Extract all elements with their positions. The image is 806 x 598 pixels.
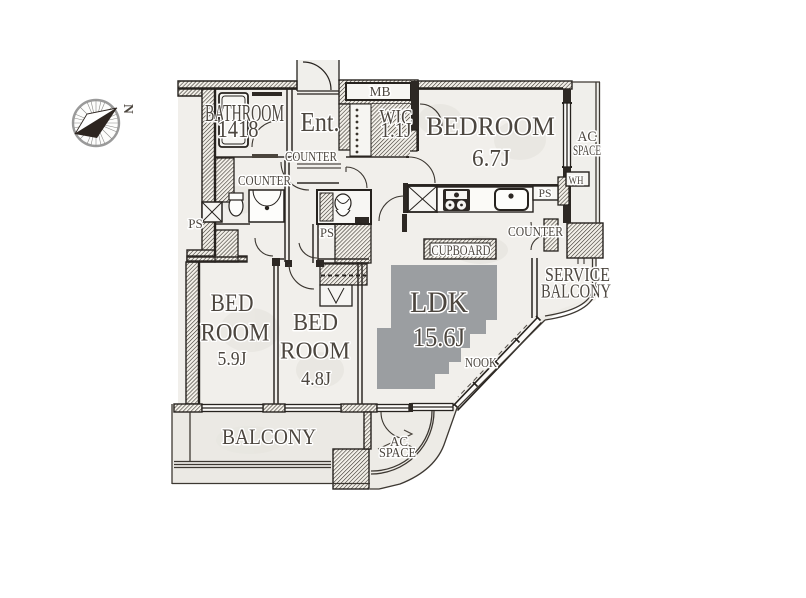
svg-text:6.7J: 6.7J bbox=[472, 146, 510, 172]
svg-text:COUNTER: COUNTER bbox=[285, 149, 338, 164]
svg-text:ROOM: ROOM bbox=[200, 320, 269, 347]
svg-text:5.9J: 5.9J bbox=[218, 348, 247, 370]
svg-text:MB: MB bbox=[370, 84, 391, 99]
svg-text:15.6J: 15.6J bbox=[413, 324, 465, 352]
svg-text:CUPBOARD: CUPBOARD bbox=[432, 241, 491, 258]
svg-text:BED: BED bbox=[211, 290, 254, 318]
svg-text:COUNTER: COUNTER bbox=[238, 173, 292, 188]
svg-text:PS: PS bbox=[320, 226, 334, 240]
svg-text:BALCONY: BALCONY bbox=[541, 280, 611, 302]
svg-text:BED: BED bbox=[293, 309, 338, 336]
svg-text:1.1J: 1.1J bbox=[381, 119, 412, 142]
svg-text:ROOM: ROOM bbox=[280, 338, 350, 364]
svg-text:BEDROOM: BEDROOM bbox=[426, 112, 555, 141]
svg-text:PS: PS bbox=[539, 186, 552, 200]
svg-text:Ent.: Ent. bbox=[301, 107, 340, 138]
svg-text:N: N bbox=[121, 104, 136, 114]
svg-text:1418: 1418 bbox=[218, 115, 259, 142]
svg-text:PS: PS bbox=[188, 216, 202, 231]
svg-text:WH: WH bbox=[569, 175, 584, 187]
svg-text:BALCONY: BALCONY bbox=[222, 426, 316, 449]
svg-text:NOOK: NOOK bbox=[465, 355, 497, 370]
svg-text:COUNTER: COUNTER bbox=[508, 224, 564, 239]
svg-text:SPACE: SPACE bbox=[379, 444, 416, 460]
svg-text:SPACE: SPACE bbox=[573, 142, 601, 159]
svg-text:4.8J: 4.8J bbox=[301, 368, 331, 390]
svg-text:LDK: LDK bbox=[410, 286, 468, 319]
